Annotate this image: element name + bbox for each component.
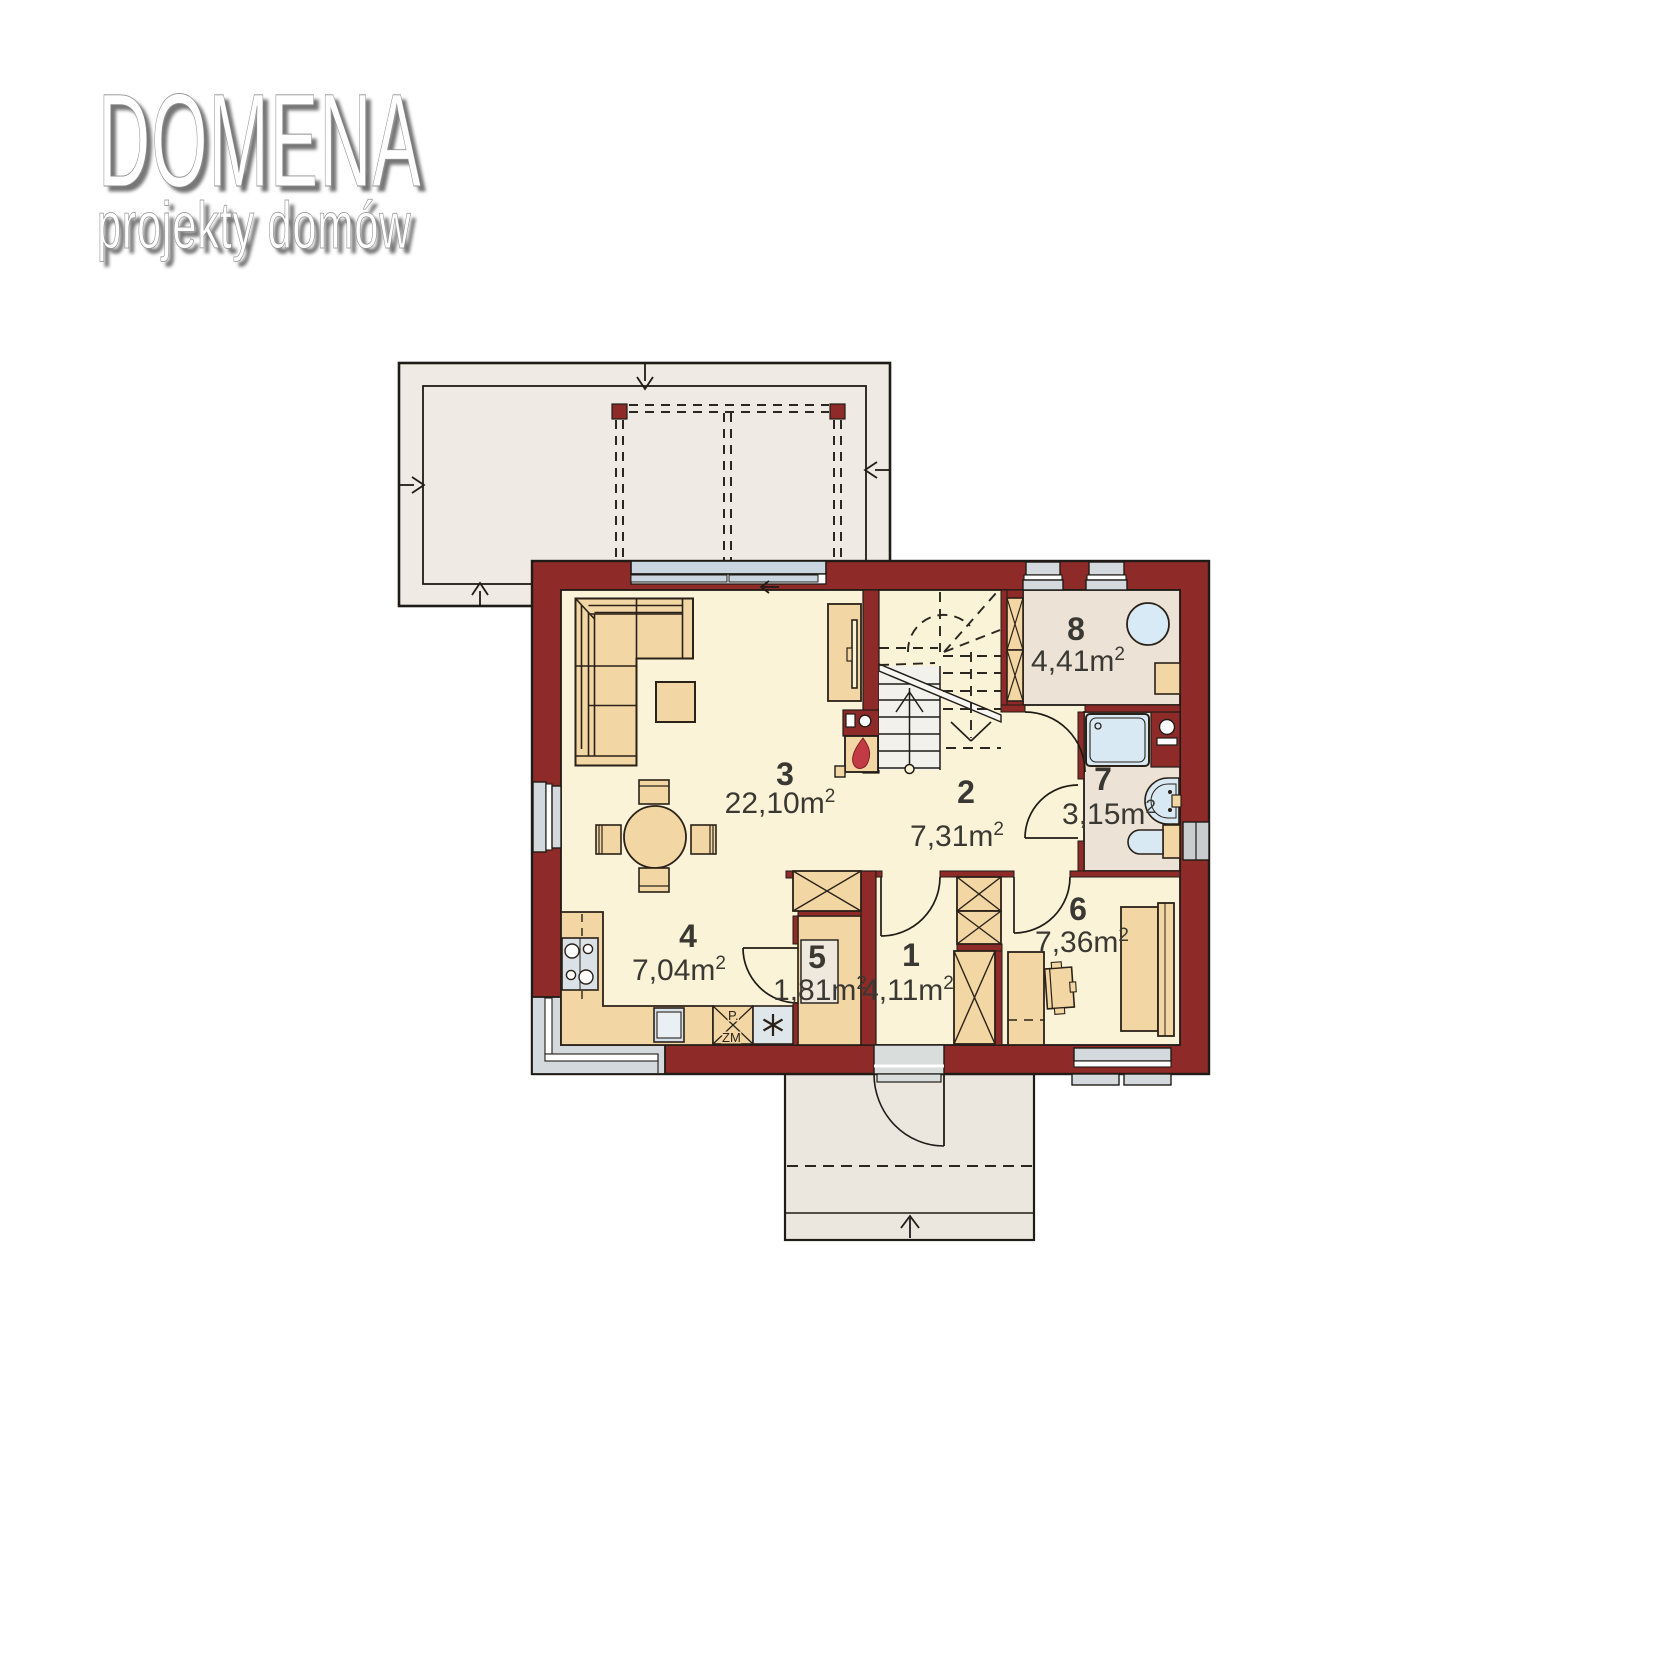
svg-text:4: 4 bbox=[679, 918, 697, 954]
svg-text:1: 1 bbox=[902, 937, 920, 973]
svg-text:2: 2 bbox=[957, 774, 975, 810]
svg-text:7: 7 bbox=[1094, 761, 1112, 797]
svg-text:4,41m2: 4,41m2 bbox=[1031, 644, 1125, 678]
svg-text:22,10m2: 22,10m2 bbox=[725, 786, 836, 820]
svg-text:4,11m2: 4,11m2 bbox=[862, 973, 954, 1007]
svg-text:1,81m2: 1,81m2 bbox=[773, 973, 867, 1007]
svg-text:7,31m2: 7,31m2 bbox=[910, 819, 1004, 853]
svg-text:projekty domów: projekty domów bbox=[97, 188, 411, 262]
svg-text:7,36m2: 7,36m2 bbox=[1035, 925, 1129, 959]
svg-text:ZM: ZM bbox=[722, 1030, 741, 1045]
svg-text:8: 8 bbox=[1067, 611, 1085, 647]
svg-text:7,04m2: 7,04m2 bbox=[632, 953, 726, 987]
svg-text:6: 6 bbox=[1069, 891, 1087, 927]
svg-text:3,15m2: 3,15m2 bbox=[1062, 797, 1156, 831]
svg-text:P.: P. bbox=[728, 1008, 739, 1023]
svg-text:5: 5 bbox=[808, 939, 826, 975]
